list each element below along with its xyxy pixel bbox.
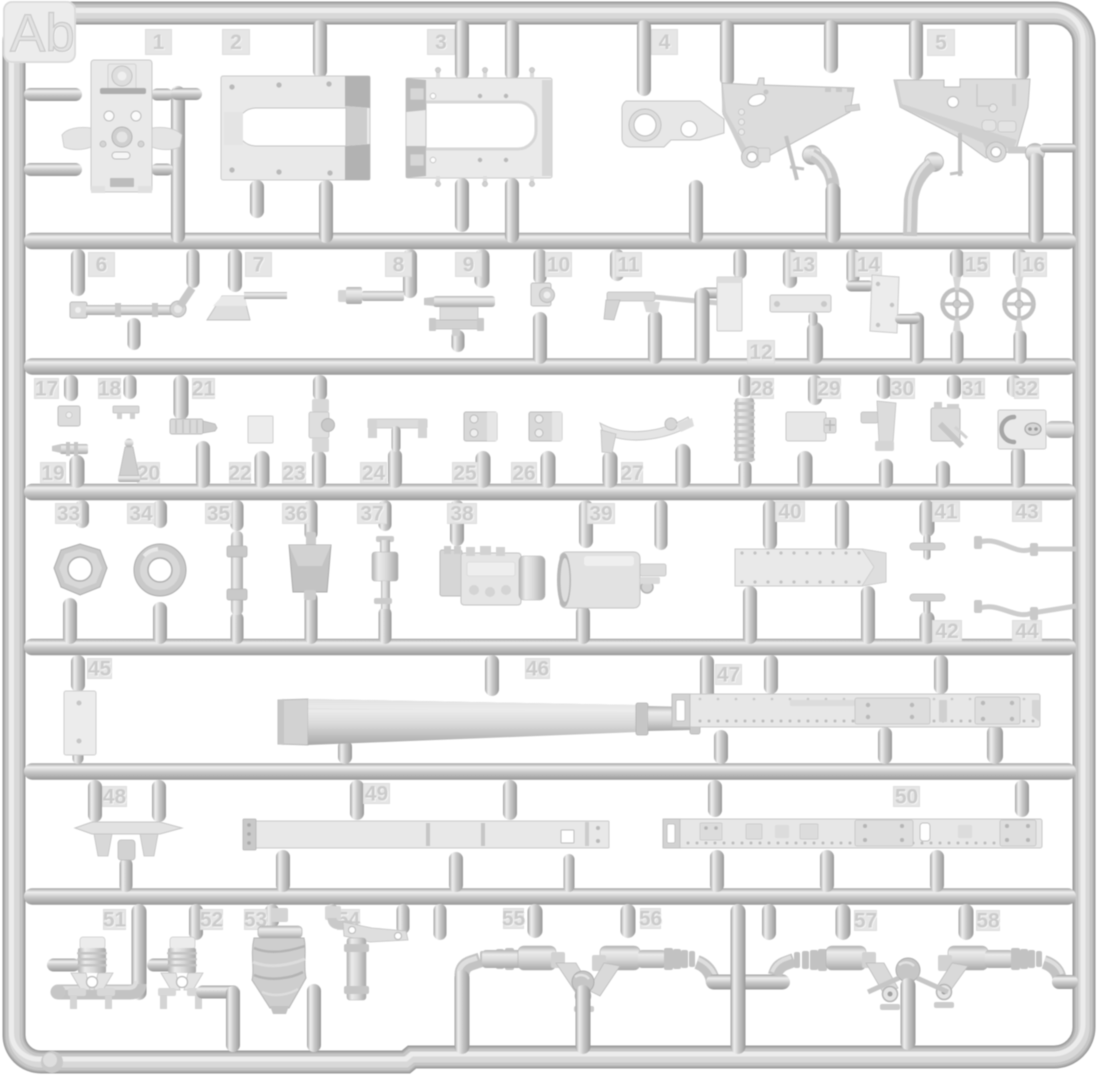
svg-text:40: 40: [778, 501, 801, 524]
svg-text:11: 11: [617, 254, 640, 277]
svg-text:8: 8: [393, 254, 405, 277]
svg-text:15: 15: [965, 254, 989, 277]
svg-text:26: 26: [512, 462, 535, 485]
svg-text:31: 31: [962, 378, 986, 401]
svg-text:2: 2: [230, 31, 242, 54]
svg-text:13: 13: [792, 254, 815, 277]
svg-text:20: 20: [137, 462, 160, 485]
svg-text:34: 34: [129, 503, 153, 526]
svg-text:22: 22: [228, 462, 251, 485]
svg-text:29: 29: [817, 378, 840, 401]
svg-text:23: 23: [282, 462, 305, 485]
svg-text:33: 33: [57, 503, 80, 526]
svg-text:49: 49: [365, 783, 388, 806]
svg-text:48: 48: [103, 786, 127, 809]
svg-text:17: 17: [35, 378, 58, 401]
svg-text:39: 39: [589, 503, 612, 526]
svg-text:16: 16: [1022, 254, 1045, 277]
svg-text:14: 14: [857, 254, 881, 277]
svg-text:10: 10: [547, 254, 570, 277]
svg-text:7: 7: [253, 254, 265, 277]
svg-text:41: 41: [934, 501, 958, 524]
svg-text:43: 43: [1015, 501, 1038, 524]
svg-text:30: 30: [891, 378, 914, 401]
svg-text:12: 12: [749, 341, 772, 364]
svg-text:5: 5: [935, 32, 947, 55]
svg-text:24: 24: [362, 462, 386, 485]
svg-text:46: 46: [526, 658, 549, 681]
svg-text:56: 56: [639, 908, 662, 931]
svg-text:28: 28: [750, 378, 774, 401]
svg-text:Ab: Ab: [10, 4, 75, 63]
svg-text:25: 25: [453, 462, 477, 485]
svg-text:58: 58: [976, 910, 1000, 933]
svg-text:38: 38: [450, 503, 474, 526]
svg-text:57: 57: [854, 910, 877, 933]
svg-text:42: 42: [935, 620, 958, 643]
svg-text:21: 21: [192, 378, 216, 401]
svg-text:44: 44: [1015, 620, 1039, 643]
svg-text:36: 36: [284, 503, 307, 526]
svg-text:45: 45: [88, 658, 112, 681]
svg-text:6: 6: [96, 254, 108, 277]
svg-text:19: 19: [41, 462, 64, 485]
svg-text:37: 37: [360, 503, 383, 526]
svg-text:27: 27: [620, 462, 643, 485]
svg-text:35: 35: [207, 503, 231, 526]
svg-text:4: 4: [659, 31, 671, 54]
svg-text:51: 51: [103, 909, 127, 932]
svg-text:50: 50: [895, 786, 918, 809]
svg-text:3: 3: [435, 31, 447, 54]
svg-text:55: 55: [502, 908, 526, 931]
svg-text:1: 1: [153, 31, 165, 54]
svg-text:52: 52: [200, 909, 223, 932]
svg-text:32: 32: [1015, 378, 1038, 401]
svg-text:47: 47: [717, 664, 740, 687]
svg-text:18: 18: [98, 378, 122, 401]
svg-text:9: 9: [463, 254, 475, 277]
